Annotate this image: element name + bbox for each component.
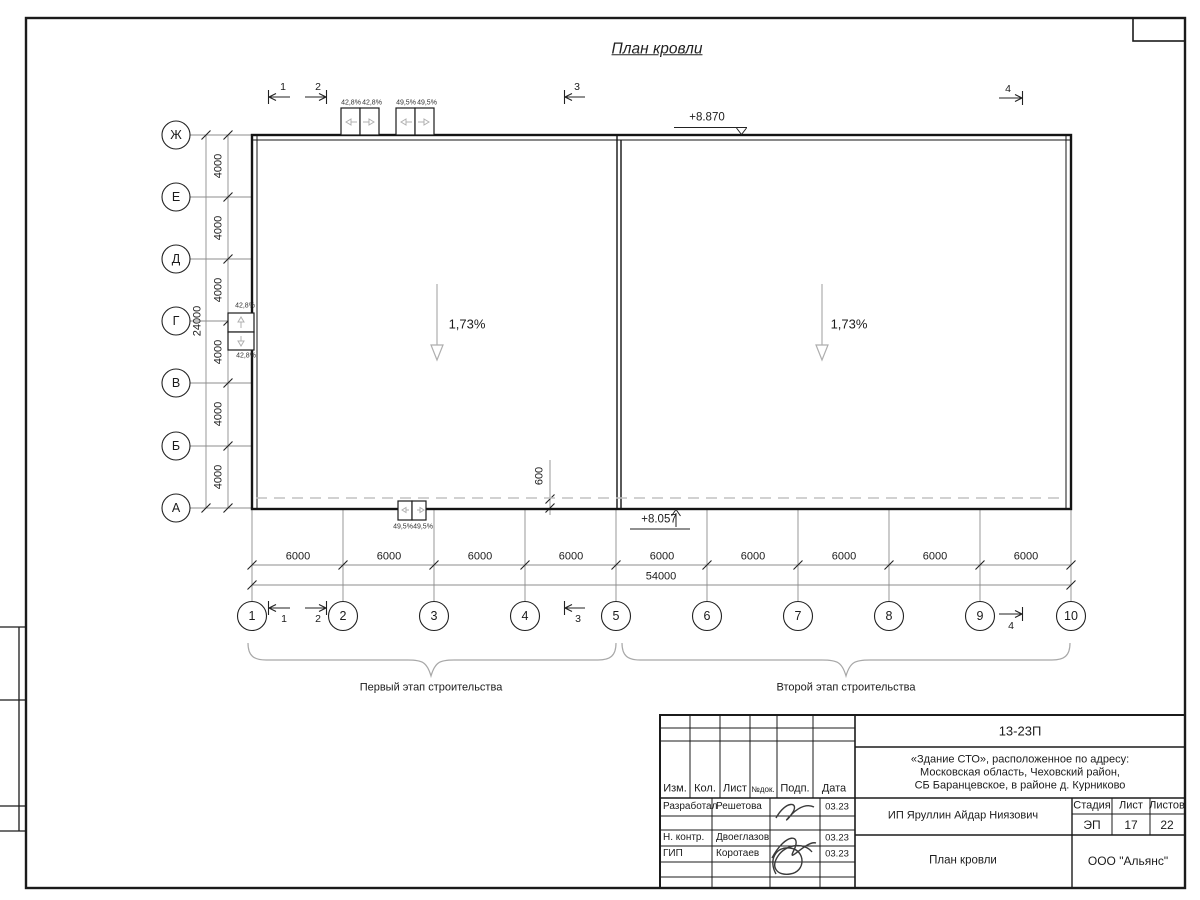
- dim-4000: 4000: [214, 154, 225, 178]
- dim-4000: 4000: [214, 402, 225, 426]
- drawing-sheet: План кровли Ж Е Д Г В Б А 1 2 3 4 5 6 7 …: [0, 0, 1200, 900]
- axis-col-6: 6: [704, 610, 711, 623]
- section-mark-1-bottom: 1: [281, 614, 287, 625]
- axis-row-e: Е: [172, 191, 180, 204]
- vent-label: 49,5%: [417, 100, 437, 107]
- stage-braces: [248, 643, 1070, 676]
- elevation-top: +8.870: [689, 112, 725, 124]
- tb-header-izm: Изм.: [663, 784, 687, 795]
- slope-label-left: 1,73%: [449, 318, 486, 331]
- tb-role-developer: Разработал: [663, 802, 717, 812]
- dim-6000: 6000: [286, 552, 310, 563]
- corner-stamp-box: [1133, 18, 1185, 41]
- tb-header-list: Лист: [723, 784, 747, 795]
- axis-row-d: Д: [172, 253, 180, 266]
- axis-row-a: А: [172, 502, 180, 515]
- section-mark-2-top: 2: [315, 82, 321, 93]
- tb-sheets-label: Листов: [1149, 801, 1185, 812]
- tb-sheets-value: 22: [1160, 819, 1173, 831]
- project-address-line1: «Здание СТО», расположенное по адресу:: [911, 755, 1129, 766]
- project-address-line2: Московская область, Чеховский район,: [920, 768, 1120, 779]
- tb-stage-label: Стадия: [1073, 801, 1111, 812]
- dim-24000-total: 24000: [193, 306, 204, 337]
- vent-label: 49,5%: [396, 100, 416, 107]
- tb-client: ИП Яруллин Айдар Ниязович: [888, 811, 1038, 822]
- elevation-bottom: +8.057: [641, 514, 677, 526]
- vent-label: 42,8%: [236, 353, 256, 360]
- dimension-ticks: [202, 131, 1076, 590]
- axis-col-3: 3: [431, 610, 438, 623]
- tb-header-podp: Подп.: [780, 784, 809, 795]
- section-mark-4-top: 4: [1005, 84, 1011, 95]
- project-address-line3: СБ Баранцевское, в районе д. Курниково: [915, 781, 1126, 792]
- tb-name-developer: Решетова: [716, 802, 762, 812]
- dim-6000: 6000: [650, 552, 674, 563]
- dim-6000: 6000: [468, 552, 492, 563]
- tb-date-gip: 03.23: [825, 849, 849, 859]
- tb-date-ncontrol: 03.23: [825, 833, 849, 843]
- section-marks: [269, 90, 1023, 621]
- dim-6000: 6000: [923, 552, 947, 563]
- section-mark-3-top: 3: [574, 82, 580, 93]
- slope-arrow-left: [431, 284, 443, 360]
- section-mark-1-top: 1: [280, 82, 286, 93]
- axis-col-9: 9: [977, 610, 984, 623]
- axis-col-10: 10: [1064, 610, 1078, 623]
- tb-name-gip: Коротаев: [716, 849, 759, 859]
- slope-label-right: 1,73%: [831, 318, 868, 331]
- vent-label: 49,5%: [413, 524, 433, 531]
- axis-col-7: 7: [795, 610, 802, 623]
- axis-col-4: 4: [522, 610, 529, 623]
- stage-second-label: Второй этап строительства: [777, 683, 916, 694]
- tb-header-ndok: №док.: [751, 786, 774, 794]
- dim-6000: 6000: [1014, 552, 1038, 563]
- tb-role-ncontrol: Н. контр.: [663, 833, 704, 843]
- axis-col-5: 5: [613, 610, 620, 623]
- dim-4000: 4000: [214, 340, 225, 364]
- dim-4000: 4000: [214, 465, 225, 489]
- dim-600: 600: [535, 467, 546, 485]
- dim-4000: 4000: [214, 216, 225, 240]
- axis-row-g: Г: [173, 315, 180, 328]
- axis-grid: [190, 135, 1071, 601]
- stage-divider-wall: [617, 135, 621, 509]
- doc-number: 13-23П: [999, 725, 1042, 738]
- elevation-marks: [630, 128, 747, 530]
- section-mark-2-bottom: 2: [315, 614, 321, 625]
- tb-header-data: Дата: [822, 784, 846, 795]
- axis-row-b: Б: [172, 440, 180, 453]
- dim-4000: 4000: [214, 278, 225, 302]
- axis-col-1: 1: [249, 610, 256, 623]
- dim-6000: 6000: [559, 552, 583, 563]
- dim-6000: 6000: [741, 552, 765, 563]
- left-margin-stamp: [0, 627, 26, 831]
- vent-label: 42,8%: [341, 100, 361, 107]
- axis-row-v: В: [172, 377, 180, 390]
- page-title: План кровли: [612, 41, 703, 57]
- axis-col-2: 2: [340, 610, 347, 623]
- stage-first-label: Первый этап строительства: [360, 683, 503, 694]
- tb-date-developer: 03.23: [825, 802, 849, 812]
- building-outline: [252, 135, 1071, 509]
- tb-drawing-title: План кровли: [929, 855, 997, 867]
- tb-header-kol: Кол.: [694, 784, 716, 795]
- dim-6000: 6000: [832, 552, 856, 563]
- vent-label: 42,8%: [235, 303, 255, 310]
- slope-arrow-right: [816, 284, 828, 360]
- section-mark-4-bottom: 4: [1008, 621, 1014, 632]
- dim-54000-total: 54000: [646, 572, 677, 583]
- vent-label: 42,8%: [362, 100, 382, 107]
- axis-row-zh: Ж: [170, 129, 182, 142]
- section-mark-3-bottom: 3: [575, 614, 581, 625]
- tb-name-ncontrol: Двоеглазов: [716, 833, 769, 843]
- dim-6000: 6000: [377, 552, 401, 563]
- tb-sheet-value: 17: [1124, 819, 1137, 831]
- tb-role-gip: ГИП: [663, 849, 683, 859]
- tb-stage-value: ЭП: [1083, 819, 1100, 831]
- axis-col-8: 8: [886, 610, 893, 623]
- tb-company: ООО "Альянс": [1088, 855, 1168, 867]
- vent-label: 49,5%: [393, 524, 413, 531]
- signature-scrawls: [772, 804, 816, 874]
- tb-sheet-label: Лист: [1119, 801, 1143, 812]
